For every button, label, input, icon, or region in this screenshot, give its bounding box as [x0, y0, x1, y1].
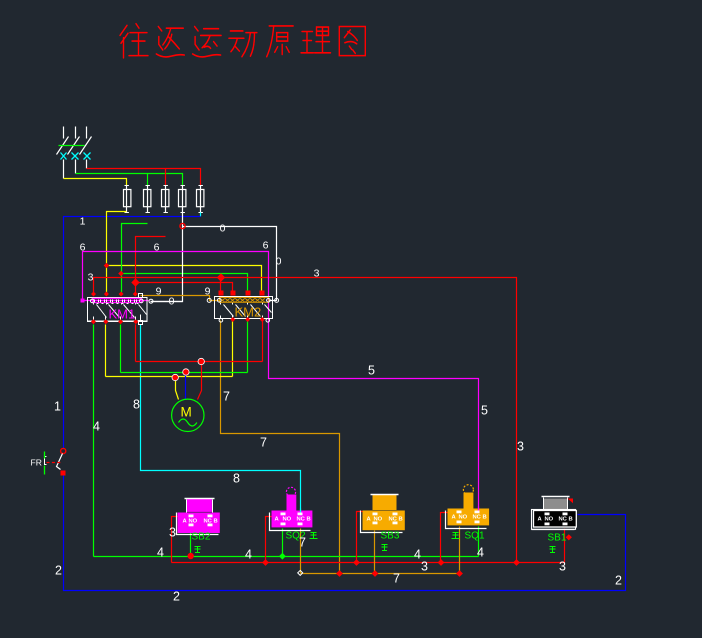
svg-text:4: 4 — [477, 546, 484, 560]
svg-text:SB3: SB3 — [381, 531, 400, 542]
svg-text:7: 7 — [299, 536, 306, 550]
svg-text:0: 0 — [169, 296, 175, 308]
svg-text:5: 5 — [481, 404, 488, 418]
svg-text:3: 3 — [559, 560, 566, 574]
svg-text:8: 8 — [233, 472, 240, 486]
svg-text:NO: NO — [459, 515, 468, 521]
svg-text:4: 4 — [157, 546, 164, 560]
svg-text:6: 6 — [154, 242, 160, 254]
svg-text:B: B — [214, 519, 218, 525]
svg-text:2: 2 — [173, 590, 180, 604]
svg-text:SQ1: SQ1 — [465, 531, 485, 542]
svg-text:8: 8 — [133, 398, 140, 412]
svg-text:SB1: SB1 — [548, 533, 567, 544]
svg-text:B: B — [307, 517, 311, 523]
svg-text:3: 3 — [314, 268, 320, 280]
svg-text:NC: NC — [297, 517, 306, 523]
svg-text:0: 0 — [220, 223, 226, 235]
svg-text:NO: NO — [545, 517, 554, 523]
svg-text:KM1: KM1 — [109, 307, 136, 322]
svg-text:9: 9 — [205, 286, 211, 298]
svg-text:7: 7 — [393, 572, 400, 586]
svg-text:NC: NC — [473, 515, 482, 521]
svg-text:2: 2 — [615, 574, 622, 588]
svg-text:SB2: SB2 — [192, 532, 211, 543]
svg-text:FR: FR — [31, 458, 42, 468]
svg-text:NO: NO — [283, 517, 292, 523]
svg-text:4: 4 — [93, 420, 100, 434]
svg-text:6: 6 — [80, 242, 86, 254]
svg-text:9: 9 — [156, 286, 162, 298]
svg-text:2: 2 — [55, 564, 62, 578]
svg-text:NC: NC — [559, 517, 568, 523]
svg-text:3: 3 — [88, 272, 94, 284]
svg-text:1: 1 — [54, 400, 61, 414]
svg-text:M: M — [181, 405, 192, 420]
svg-text:7: 7 — [223, 390, 230, 404]
svg-text:B: B — [569, 517, 573, 523]
svg-text:4: 4 — [414, 548, 421, 562]
svg-text:7: 7 — [260, 436, 267, 450]
svg-text:3: 3 — [517, 440, 524, 454]
svg-text:0: 0 — [276, 256, 282, 268]
svg-text:1: 1 — [80, 216, 86, 228]
svg-text:3: 3 — [421, 560, 428, 574]
svg-text:6: 6 — [263, 240, 269, 252]
svg-text:B: B — [399, 517, 403, 523]
svg-text:5: 5 — [368, 364, 375, 378]
svg-text:4: 4 — [245, 548, 252, 562]
svg-text:3: 3 — [169, 526, 176, 540]
svg-text:B: B — [483, 515, 487, 521]
